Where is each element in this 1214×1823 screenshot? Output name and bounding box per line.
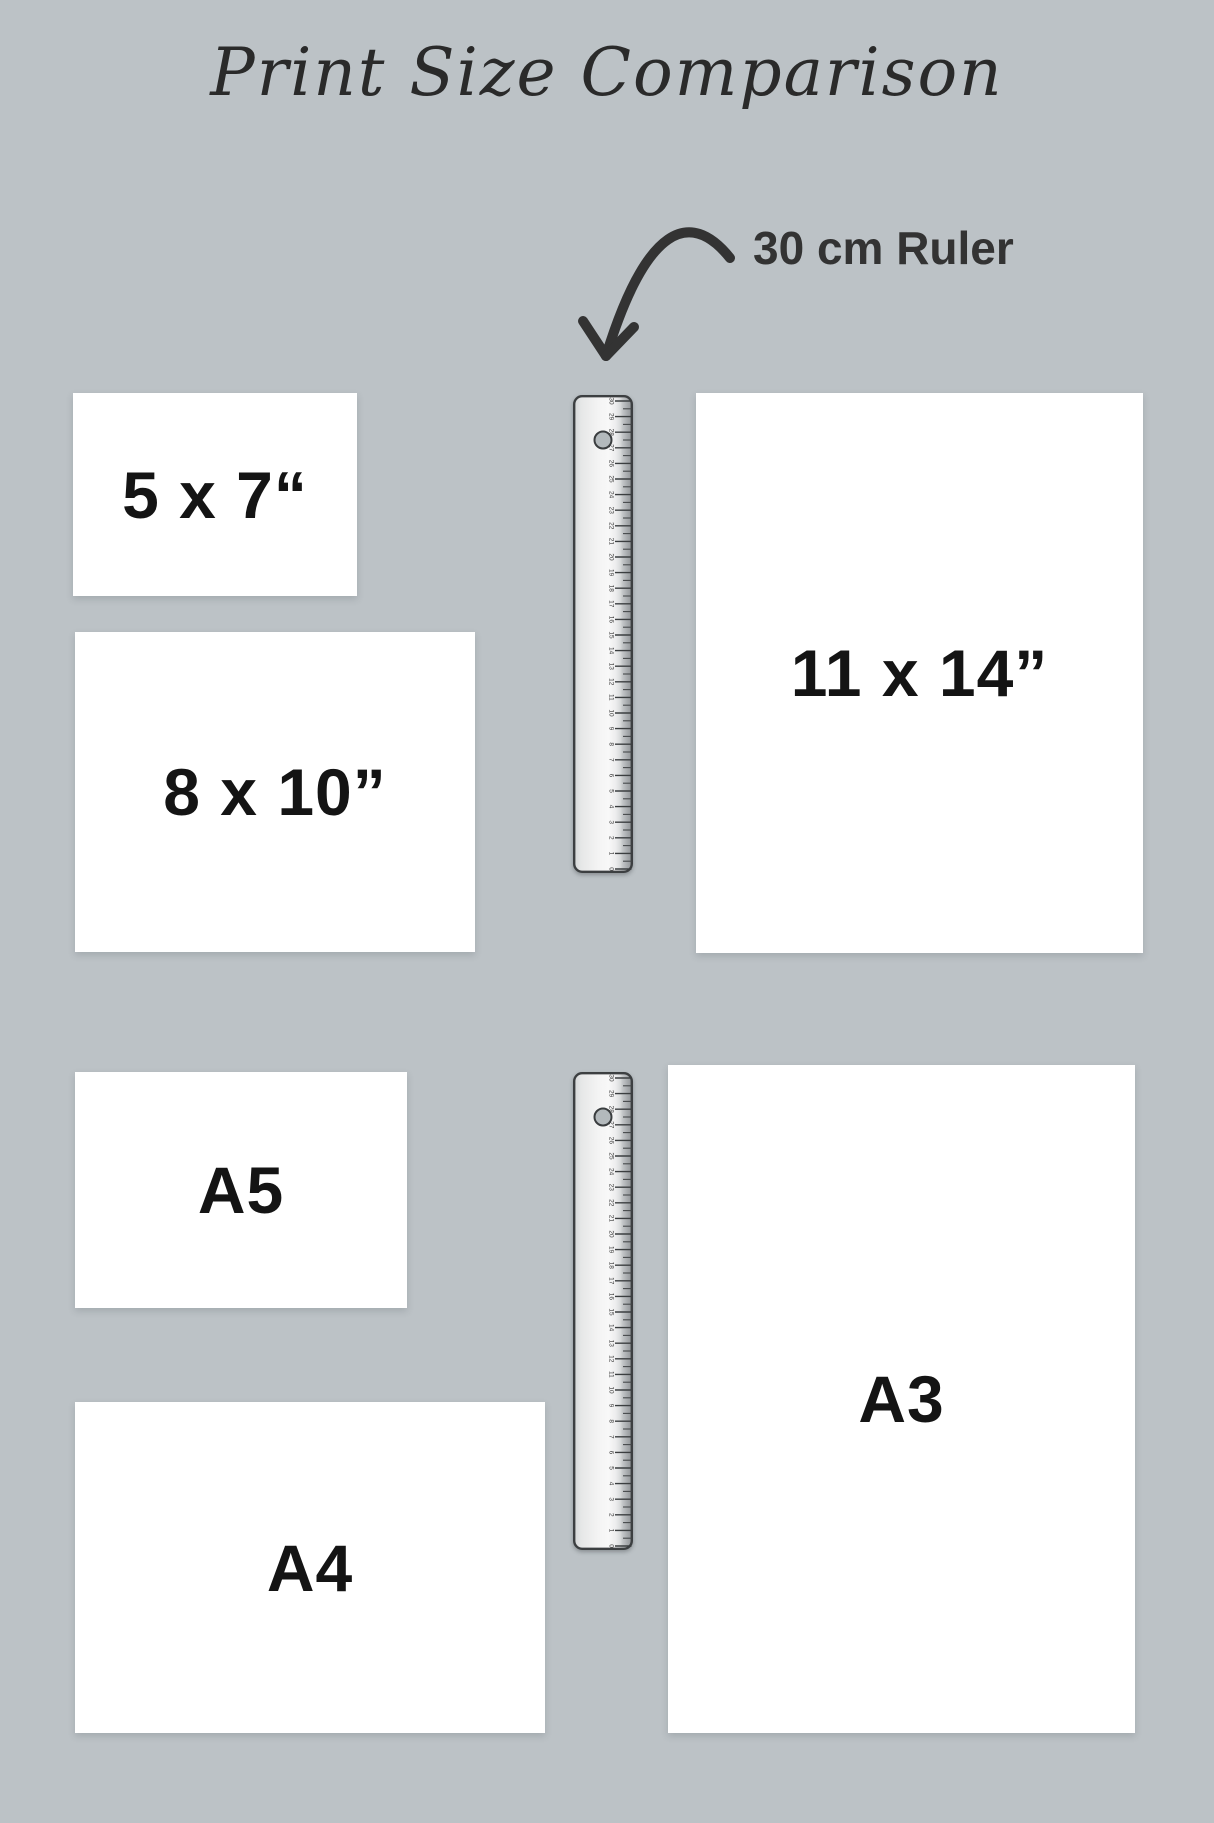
print-size-label-a4: A4 bbox=[267, 1530, 353, 1606]
svg-text:29: 29 bbox=[607, 413, 614, 421]
svg-text:13: 13 bbox=[607, 663, 614, 671]
svg-text:0: 0 bbox=[607, 867, 614, 871]
svg-text:4: 4 bbox=[607, 805, 614, 809]
svg-text:5: 5 bbox=[607, 789, 614, 793]
svg-text:7: 7 bbox=[607, 1435, 614, 1439]
svg-text:12: 12 bbox=[607, 678, 614, 686]
svg-text:26: 26 bbox=[607, 1137, 614, 1145]
svg-text:7: 7 bbox=[607, 758, 614, 762]
svg-text:10: 10 bbox=[607, 1386, 614, 1394]
svg-text:18: 18 bbox=[607, 1262, 614, 1270]
ruler-bottom: 0123456789101112131415161718192021222324… bbox=[573, 1072, 633, 1550]
svg-text:20: 20 bbox=[607, 1230, 614, 1238]
print-size-rect-11x14: 11 x 14” bbox=[696, 393, 1143, 953]
svg-text:4: 4 bbox=[607, 1482, 614, 1486]
print-size-rect-5x7: 5 x 7“ bbox=[73, 393, 357, 596]
svg-text:17: 17 bbox=[607, 600, 614, 608]
svg-text:2: 2 bbox=[607, 1513, 614, 1517]
svg-text:25: 25 bbox=[607, 1152, 614, 1160]
svg-text:11: 11 bbox=[607, 1371, 614, 1378]
svg-text:16: 16 bbox=[607, 616, 614, 624]
svg-text:24: 24 bbox=[607, 1168, 614, 1176]
svg-text:10: 10 bbox=[607, 709, 614, 717]
svg-text:13: 13 bbox=[607, 1340, 614, 1348]
svg-text:20: 20 bbox=[607, 553, 614, 561]
ruler-top: 0123456789101112131415161718192021222324… bbox=[573, 395, 633, 873]
print-size-label-a3: A3 bbox=[858, 1361, 944, 1437]
svg-text:8: 8 bbox=[607, 1419, 614, 1423]
print-size-rect-a3: A3 bbox=[668, 1065, 1135, 1733]
print-size-label-5x7: 5 x 7“ bbox=[122, 457, 308, 533]
svg-text:11: 11 bbox=[607, 694, 614, 701]
svg-text:1: 1 bbox=[607, 1529, 614, 1533]
curved-arrow-icon bbox=[540, 200, 800, 390]
svg-text:17: 17 bbox=[607, 1277, 614, 1285]
svg-text:8: 8 bbox=[607, 742, 614, 746]
svg-text:15: 15 bbox=[607, 631, 614, 639]
svg-text:5: 5 bbox=[607, 1466, 614, 1470]
svg-text:14: 14 bbox=[607, 1324, 614, 1332]
svg-text:15: 15 bbox=[607, 1308, 614, 1316]
svg-text:12: 12 bbox=[607, 1355, 614, 1363]
svg-text:30: 30 bbox=[607, 1074, 614, 1082]
svg-text:16: 16 bbox=[607, 1293, 614, 1301]
print-size-rect-8x10: 8 x 10” bbox=[75, 632, 475, 952]
svg-text:23: 23 bbox=[607, 507, 614, 515]
svg-text:21: 21 bbox=[607, 538, 614, 546]
print-size-comparison-graphic: Print Size Comparison 30 cm Ruler 5 x 7“… bbox=[0, 0, 1214, 1823]
svg-text:19: 19 bbox=[607, 569, 614, 577]
print-size-rect-a5: A5 bbox=[75, 1072, 407, 1308]
svg-text:29: 29 bbox=[607, 1090, 614, 1098]
print-size-label-a5: A5 bbox=[198, 1152, 284, 1228]
svg-text:19: 19 bbox=[607, 1246, 614, 1254]
svg-text:6: 6 bbox=[607, 774, 614, 778]
svg-text:14: 14 bbox=[607, 647, 614, 655]
svg-text:3: 3 bbox=[607, 820, 614, 824]
svg-text:1: 1 bbox=[607, 852, 614, 856]
page-title: Print Size Comparison bbox=[0, 34, 1214, 111]
svg-text:2: 2 bbox=[607, 836, 614, 840]
svg-text:9: 9 bbox=[607, 727, 614, 731]
svg-text:0: 0 bbox=[607, 1544, 614, 1548]
svg-text:25: 25 bbox=[607, 475, 614, 483]
svg-text:26: 26 bbox=[607, 460, 614, 468]
ruler-hang-hole bbox=[595, 1109, 612, 1126]
print-size-label-11x14: 11 x 14” bbox=[791, 635, 1049, 711]
print-size-label-8x10: 8 x 10” bbox=[163, 754, 387, 830]
svg-text:30: 30 bbox=[607, 397, 614, 405]
svg-text:9: 9 bbox=[607, 1404, 614, 1408]
svg-text:24: 24 bbox=[607, 491, 614, 499]
svg-text:23: 23 bbox=[607, 1184, 614, 1192]
svg-text:18: 18 bbox=[607, 585, 614, 593]
svg-text:3: 3 bbox=[607, 1497, 614, 1501]
ruler-hang-hole bbox=[595, 432, 612, 449]
svg-text:22: 22 bbox=[607, 522, 614, 530]
svg-text:21: 21 bbox=[607, 1215, 614, 1223]
print-size-rect-a4: A4 bbox=[75, 1402, 545, 1733]
svg-text:22: 22 bbox=[607, 1199, 614, 1207]
svg-text:6: 6 bbox=[607, 1451, 614, 1455]
